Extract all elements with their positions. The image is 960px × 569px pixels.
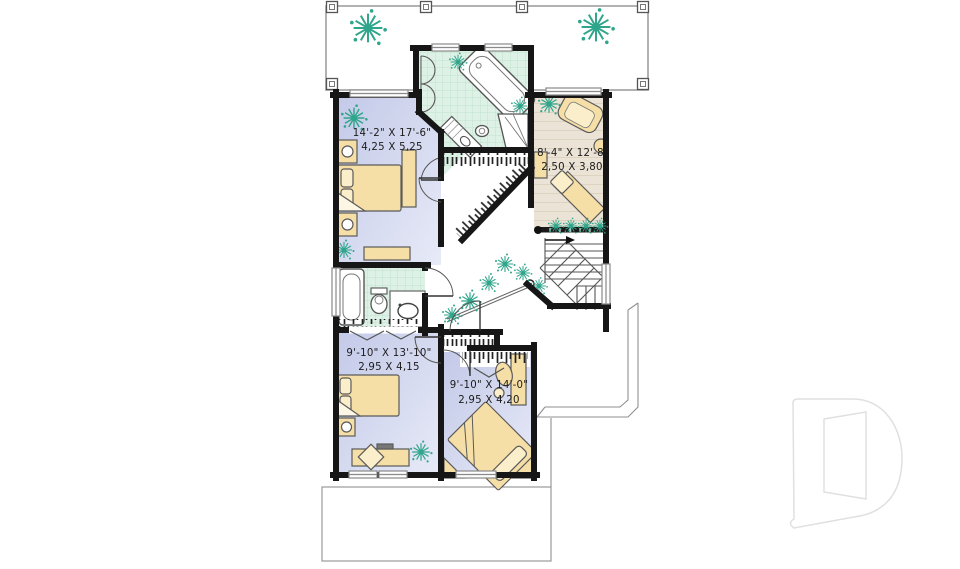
deck-post [327, 79, 338, 90]
deck-post [421, 2, 432, 13]
den-dim-imperial: 8'-4" X 12'-8" [537, 148, 609, 159]
window [350, 90, 408, 97]
closet-opening [349, 327, 418, 334]
closet-rod [453, 161, 529, 239]
pillow [340, 378, 351, 394]
window [456, 471, 496, 478]
plant-icon [459, 289, 482, 311]
window [602, 264, 610, 304]
bedroom3-dim-metric: 2,95 X 4,20 [458, 395, 520, 406]
toilet [476, 126, 489, 137]
staircase [540, 236, 607, 310]
walk-in-closet [444, 153, 529, 239]
lamp [342, 146, 353, 157]
deck-post [517, 2, 528, 13]
bedroom2-dim-metric: 2,95 X 4,15 [358, 362, 420, 373]
pillow [341, 169, 353, 187]
hall-closet-rod [444, 335, 494, 346]
window [379, 471, 407, 478]
deck-post [327, 2, 338, 13]
closet-rod [462, 351, 528, 365]
door-swing [425, 268, 453, 296]
dresser [364, 247, 410, 260]
desk-item [377, 444, 393, 449]
closet-rod [444, 153, 528, 166]
plant-icon [495, 254, 516, 274]
plant-icon [480, 273, 499, 292]
plant-icon [442, 305, 463, 325]
stair-treads [545, 238, 604, 283]
window [349, 471, 377, 478]
toilet-tank [371, 288, 387, 294]
deck-post [638, 79, 649, 90]
master-bedroom-dim-imperial: 14'-2" X 17'-6" [353, 128, 431, 139]
den-dim-metric: 2,50 X 3,80 [541, 162, 603, 173]
floor-plan-canvas: 14'-2" X 17'-6" 4,25 X 5,25 8'-4" X 12'-… [0, 0, 960, 569]
bedroom2-dim-imperial: 9'-10" X 13'-10" [346, 348, 431, 359]
floor-plan-page: 14'-2" X 17'-6" 4,25 X 5,25 8'-4" X 12'-… [0, 0, 960, 569]
deck-post [638, 2, 649, 13]
lamp [342, 422, 352, 432]
window [546, 88, 601, 95]
drummond-d-logo-watermark [791, 399, 903, 528]
stair-direction-arrow [566, 236, 575, 244]
plant-icon [514, 264, 532, 282]
lamp [342, 219, 353, 230]
window [485, 44, 512, 51]
armoire [402, 150, 416, 207]
window [432, 44, 459, 51]
bedroom3-dim-imperial: 9'-10" X 14'-0" [450, 380, 528, 391]
window [332, 268, 340, 316]
master-bedroom-dim-metric: 4,25 X 5,25 [361, 142, 423, 153]
